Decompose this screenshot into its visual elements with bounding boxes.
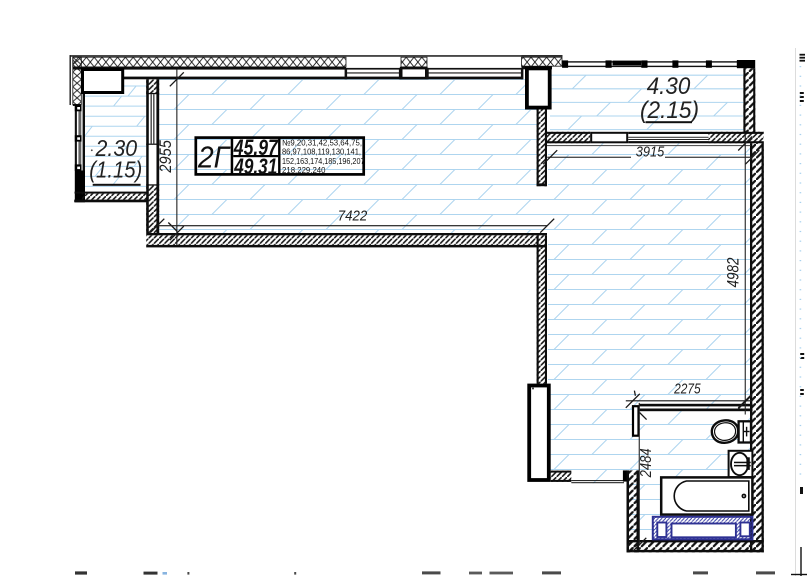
- svg-text:3915: 3915: [636, 144, 665, 160]
- svg-text:4982: 4982: [725, 258, 743, 288]
- svg-text:2955: 2955: [157, 139, 175, 173]
- svg-text:2Г: 2Г: [197, 139, 231, 174]
- svg-text:218,229,240: 218,229,240: [282, 166, 326, 175]
- svg-text:152,163,174,185,196,207: 152,163,174,185,196,207: [282, 157, 365, 166]
- svg-text:2275: 2275: [673, 382, 701, 398]
- svg-text:(1.15): (1.15): [89, 157, 142, 183]
- svg-text:№9,20,31,42,53,64,75,: №9,20,31,42,53,64,75,: [282, 138, 362, 147]
- svg-text:7422: 7422: [338, 207, 368, 224]
- svg-text:86,97,108,119,130,141,: 86,97,108,119,130,141,: [282, 148, 361, 157]
- svg-text:49.31: 49.31: [234, 154, 278, 179]
- svg-text:(2.15): (2.15): [640, 97, 699, 124]
- svg-text:2484: 2484: [638, 448, 655, 478]
